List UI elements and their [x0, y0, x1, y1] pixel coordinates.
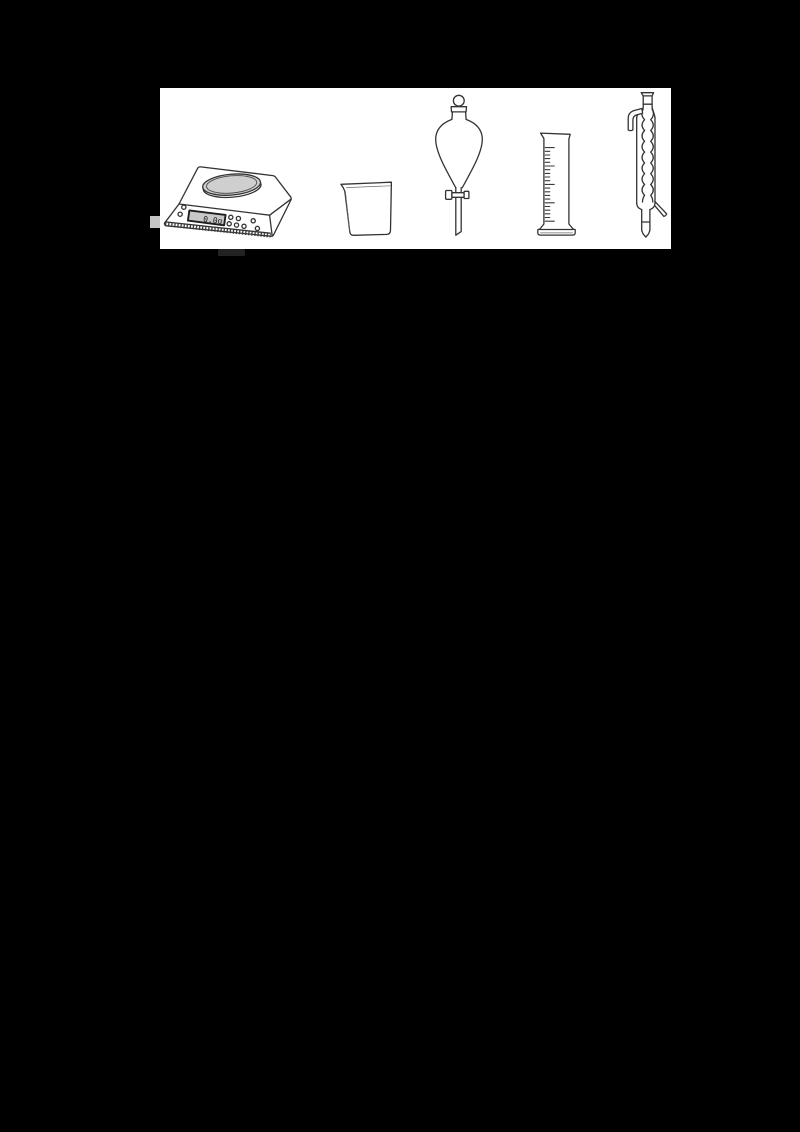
funnel-neck [452, 112, 466, 120]
condenser-top-joint [641, 93, 653, 105]
condenser-bottom-shoulders [637, 204, 655, 210]
condenser-bulbs-left [642, 109, 645, 202]
funnel-stopcock [446, 191, 469, 200]
condenser-outlet-arm [655, 202, 667, 217]
electronic-balance-illustration: 0.0g [160, 160, 295, 248]
funnel-stopper-collar [451, 107, 466, 112]
funnel-body-right [462, 119, 482, 187]
graduated-cylinder-illustration [535, 130, 581, 240]
funnel-stopper-ball [453, 95, 464, 106]
condenser-inlet-hook [628, 109, 642, 131]
condenser-bottom-joint [642, 210, 650, 231]
scan-artifact-bottom [218, 249, 245, 256]
beaker-illustration [336, 178, 394, 240]
cylinder-outline [538, 133, 575, 235]
condenser-tip [642, 230, 650, 237]
condenser-illustration [618, 89, 672, 241]
condenser-bulbs-right [651, 109, 654, 202]
scan-artifact-left [150, 216, 160, 228]
beaker-outline [341, 182, 391, 235]
separating-funnel-illustration [433, 92, 485, 242]
funnel-body-left [436, 119, 456, 187]
page-background: { "page": { "background": "#000000" }, "… [0, 0, 800, 1132]
equipment-figure: 0.0g [160, 88, 671, 249]
